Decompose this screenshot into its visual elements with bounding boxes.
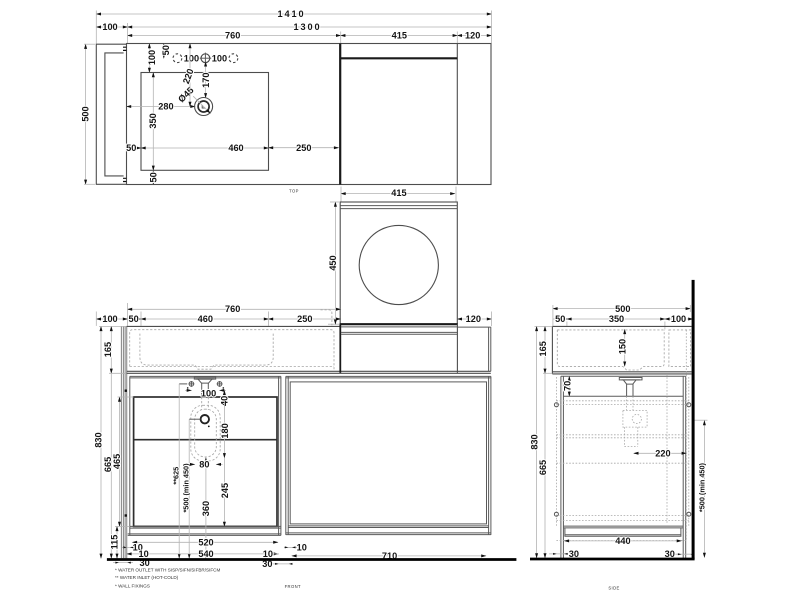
svg-text:165: 165 [103,342,113,357]
svg-text:665: 665 [538,460,548,475]
svg-text:120: 120 [465,31,480,41]
svg-text:465: 465 [112,454,122,469]
svg-text:100: 100 [147,50,157,65]
svg-text:250: 250 [297,314,312,324]
svg-text:50: 50 [149,172,159,182]
svg-text:100: 100 [102,314,117,324]
svg-text:460: 460 [198,314,213,324]
svg-text:180: 180 [220,423,230,438]
svg-text:245: 245 [220,483,230,498]
svg-text:350: 350 [148,113,158,128]
svg-text:460: 460 [228,143,243,153]
svg-text:*500 (min 450): *500 (min 450) [697,462,706,512]
svg-text:520: 520 [198,538,213,548]
svg-text:360: 360 [201,501,211,516]
svg-text:1300: 1300 [293,22,321,32]
svg-text:830: 830 [94,432,104,447]
svg-text:100: 100 [212,53,227,63]
svg-text:50: 50 [128,314,138,324]
svg-text:100: 100 [671,314,686,324]
svg-text:10: 10 [263,549,273,559]
svg-text:50: 50 [161,45,171,55]
svg-text:250: 250 [296,143,311,153]
svg-text:100: 100 [102,22,117,32]
svg-text:FRONT: FRONT [285,584,301,589]
svg-text:* WATER OUTLET WITH SISP/SIFN: * WATER OUTLET WITH SISP/SIFN/SIFBR/SIFC… [115,568,220,573]
svg-text:450: 450 [328,255,338,270]
svg-text:50: 50 [555,314,565,324]
svg-text:220: 220 [655,449,670,459]
svg-text:350: 350 [609,314,624,324]
svg-text:415: 415 [391,188,406,198]
svg-text:*500 (min 450): *500 (min 450) [181,463,190,513]
svg-text:**625: **625 [172,467,181,485]
svg-text:165: 165 [538,341,548,356]
svg-text:830: 830 [530,434,540,449]
svg-text:120: 120 [466,314,481,324]
svg-text:115: 115 [109,535,119,550]
svg-text:760: 760 [225,31,240,41]
svg-text:** WATER INLET (HOT-COLD): ** WATER INLET (HOT-COLD) [115,575,179,580]
svg-text:280: 280 [158,102,173,112]
svg-text:415: 415 [392,31,407,41]
svg-text:150: 150 [618,339,628,354]
svg-text:760: 760 [225,304,240,314]
svg-text:1410: 1410 [277,9,305,19]
svg-text:440: 440 [615,536,630,546]
svg-text:10: 10 [297,543,307,553]
svg-text:170: 170 [201,73,211,88]
svg-text:100: 100 [184,53,199,63]
svg-text:70: 70 [562,381,572,391]
svg-text:SIDE: SIDE [608,585,619,590]
svg-text:80: 80 [199,460,209,470]
svg-text:500: 500 [615,304,630,314]
svg-text:TOP: TOP [289,189,299,194]
svg-text:540: 540 [198,549,213,559]
svg-text:500: 500 [81,106,91,121]
svg-text:* WALL FIXINGS: * WALL FIXINGS [115,583,150,588]
svg-text:50: 50 [126,143,136,153]
